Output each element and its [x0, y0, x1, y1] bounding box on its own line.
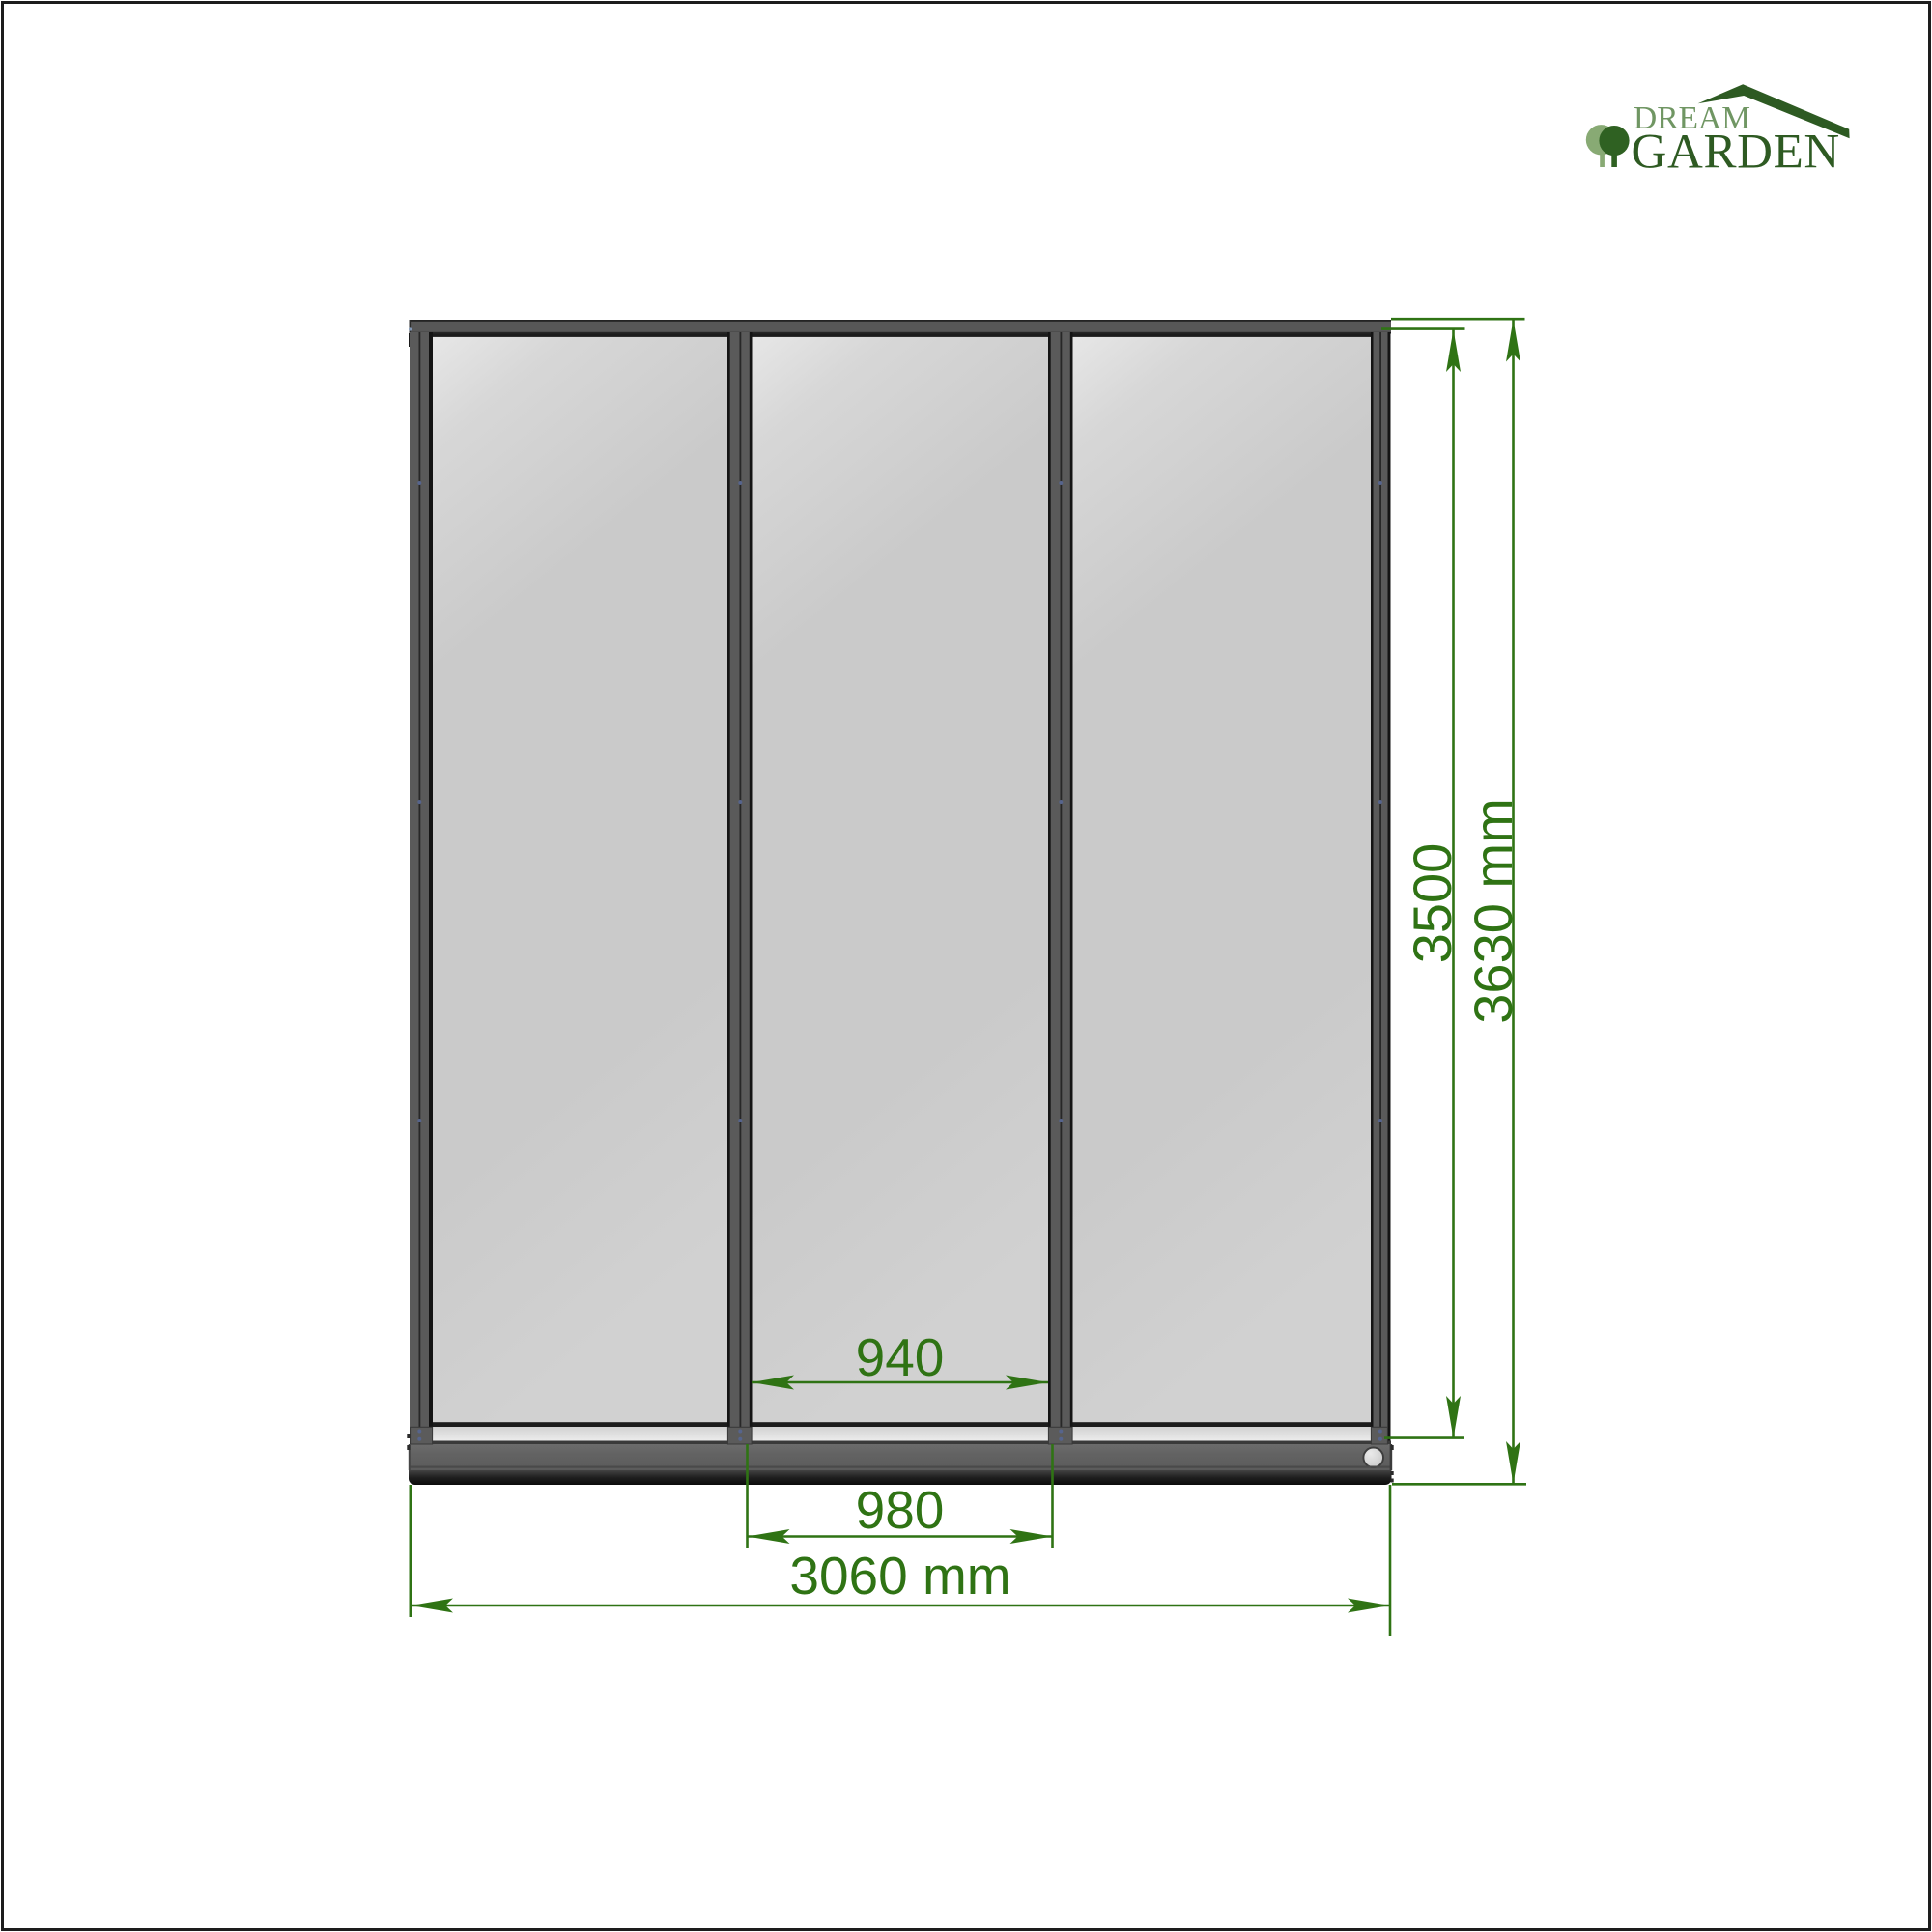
svg-text:3630 mm: 3630 mm	[1463, 798, 1523, 1023]
svg-text:GARDEN: GARDEN	[1632, 126, 1840, 180]
svg-text:980: 980	[856, 1480, 945, 1540]
svg-text:3060 mm: 3060 mm	[789, 1546, 1010, 1605]
svg-text:940: 940	[856, 1327, 945, 1387]
svg-text:3500: 3500	[1402, 843, 1463, 964]
